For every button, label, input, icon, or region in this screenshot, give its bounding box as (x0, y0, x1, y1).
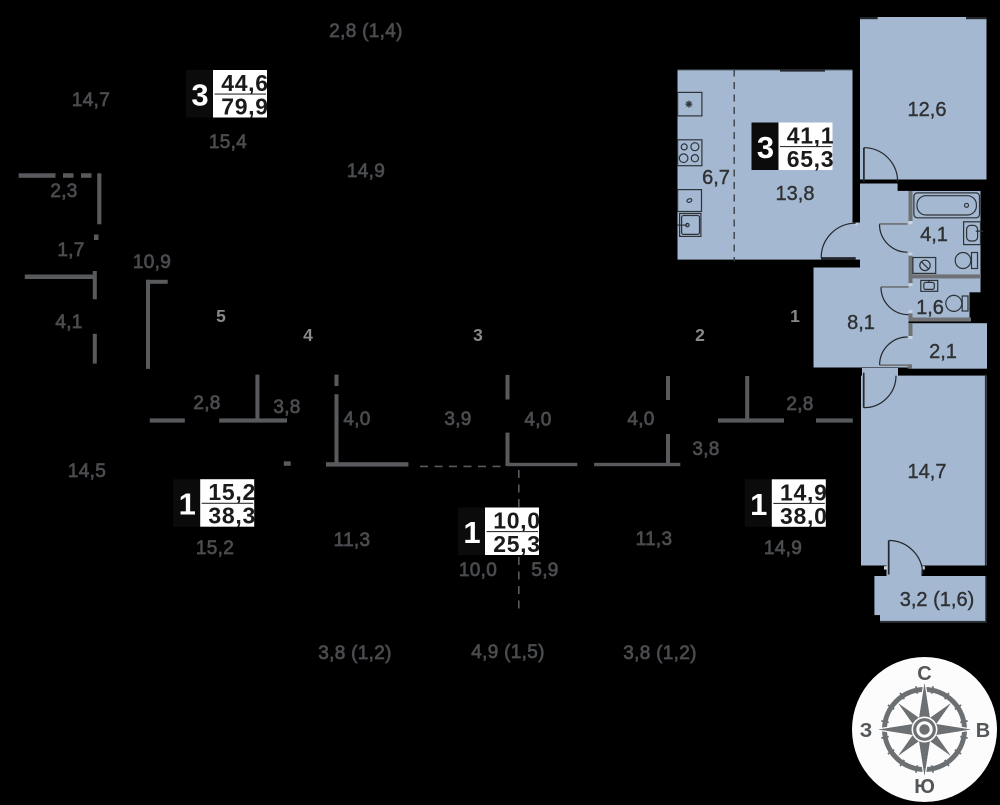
svg-text:2,3: 2,3 (50, 181, 77, 202)
svg-text:2,1: 2,1 (929, 341, 957, 363)
svg-text:15,2: 15,2 (208, 479, 256, 505)
svg-text:15,2: 15,2 (196, 538, 234, 559)
svg-text:14,9: 14,9 (347, 161, 385, 182)
svg-text:25,3: 25,3 (493, 531, 541, 557)
svg-text:3,9: 3,9 (444, 409, 471, 430)
svg-text:11,3: 11,3 (334, 530, 371, 551)
svg-text:3: 3 (473, 325, 483, 345)
svg-text:3,8: 3,8 (692, 439, 719, 460)
svg-text:14,7: 14,7 (72, 90, 110, 111)
svg-text:1: 1 (750, 487, 767, 522)
svg-text:10,0: 10,0 (493, 508, 541, 534)
svg-text:С: С (917, 663, 931, 685)
svg-text:8,1: 8,1 (847, 312, 875, 334)
svg-text:44,6: 44,6 (221, 70, 269, 96)
svg-text:1: 1 (463, 515, 480, 550)
svg-text:1,6: 1,6 (916, 297, 944, 319)
svg-text:3,8: 3,8 (273, 397, 300, 418)
svg-text:15,4: 15,4 (209, 132, 247, 153)
svg-text:2,8: 2,8 (786, 394, 813, 415)
svg-text:2: 2 (695, 325, 705, 345)
svg-text:12,6: 12,6 (908, 99, 947, 121)
svg-text:41,1: 41,1 (787, 123, 835, 149)
svg-text:3,8 (1,2): 3,8 (1,2) (318, 643, 391, 664)
svg-text:4,1: 4,1 (55, 312, 82, 333)
svg-text:1,7: 1,7 (57, 240, 84, 261)
svg-text:6,7: 6,7 (702, 167, 730, 189)
svg-text:2,8 (1,4): 2,8 (1,4) (329, 21, 402, 42)
svg-text:14,5: 14,5 (68, 461, 106, 482)
svg-text:14,9: 14,9 (764, 538, 802, 559)
svg-text:4,9 (1,5): 4,9 (1,5) (471, 642, 544, 663)
svg-text:13,8: 13,8 (776, 183, 815, 205)
svg-text:5: 5 (216, 306, 226, 326)
svg-text:В: В (976, 720, 990, 742)
svg-text:3,8 (1,2): 3,8 (1,2) (623, 643, 696, 664)
svg-text:38,0: 38,0 (780, 503, 828, 529)
svg-text:4,0: 4,0 (343, 409, 370, 430)
svg-text:4,1: 4,1 (920, 224, 948, 246)
svg-text:3: 3 (757, 130, 774, 165)
svg-text:14,9: 14,9 (780, 479, 828, 505)
svg-text:5,9: 5,9 (531, 560, 558, 581)
svg-text:4,0: 4,0 (627, 409, 654, 430)
svg-text:11,3: 11,3 (636, 529, 673, 550)
svg-text:3: 3 (191, 78, 208, 113)
svg-text:10,9: 10,9 (133, 252, 171, 273)
svg-text:Ю: Ю (914, 776, 935, 798)
svg-text:65,3: 65,3 (787, 146, 835, 172)
svg-text:2,8: 2,8 (193, 393, 220, 414)
svg-text:4,0: 4,0 (524, 410, 551, 431)
svg-text:79,9: 79,9 (221, 94, 269, 120)
svg-text:14,7: 14,7 (908, 461, 947, 483)
svg-text:1: 1 (790, 306, 800, 326)
svg-text:1: 1 (179, 487, 196, 522)
svg-text:4: 4 (303, 325, 313, 345)
svg-text:38,3: 38,3 (208, 503, 256, 529)
svg-text:3,2 (1,6): 3,2 (1,6) (900, 589, 974, 611)
svg-text:10,0: 10,0 (459, 560, 497, 581)
svg-text:З: З (860, 720, 873, 742)
